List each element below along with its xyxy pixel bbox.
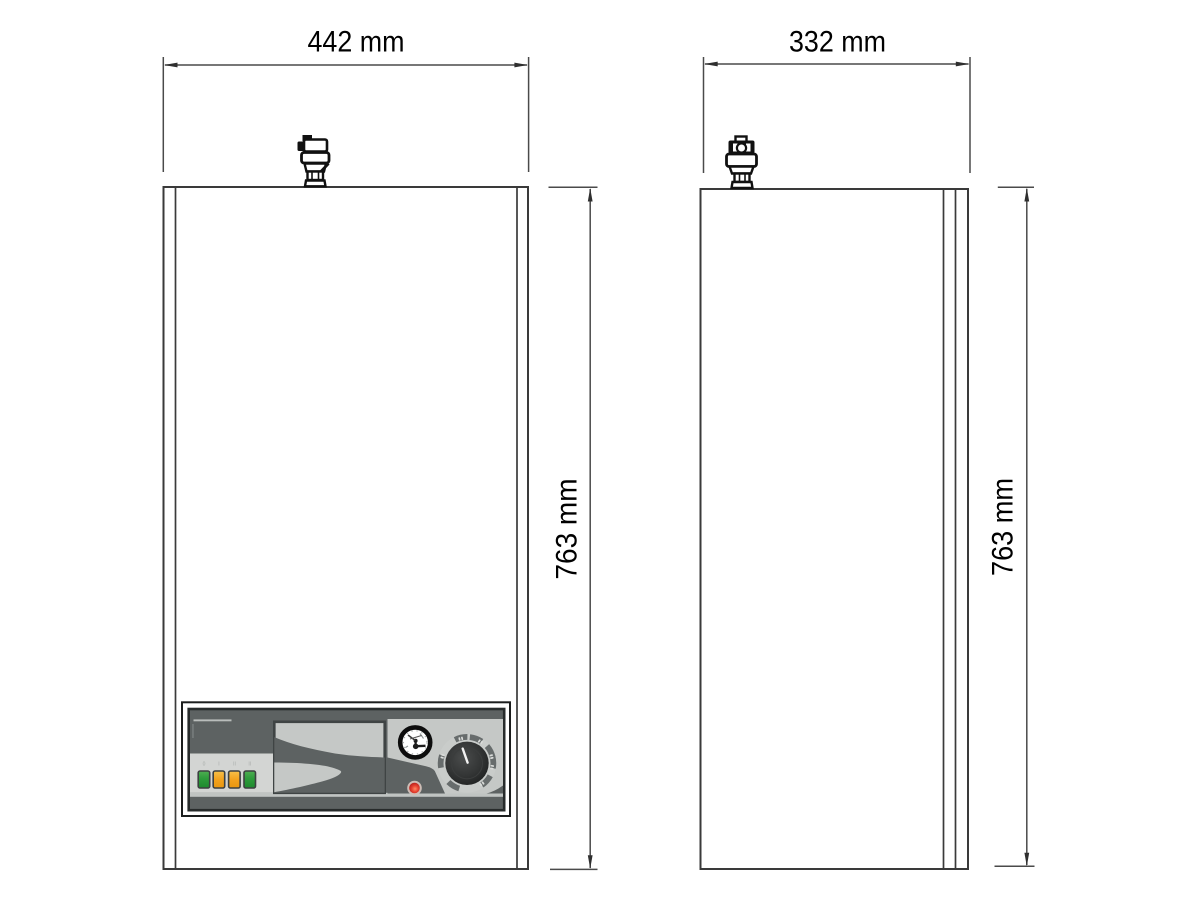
svg-text:II: II [233,762,236,768]
svg-text:0: 0 [203,762,206,768]
svg-text:442 mm: 442 mm [308,25,405,58]
svg-text:I: I [218,762,219,768]
svg-text:332 mm: 332 mm [789,25,886,58]
svg-text:II: II [248,762,251,768]
svg-text:763 mm: 763 mm [551,479,584,580]
svg-text:763 mm: 763 mm [987,478,1020,576]
